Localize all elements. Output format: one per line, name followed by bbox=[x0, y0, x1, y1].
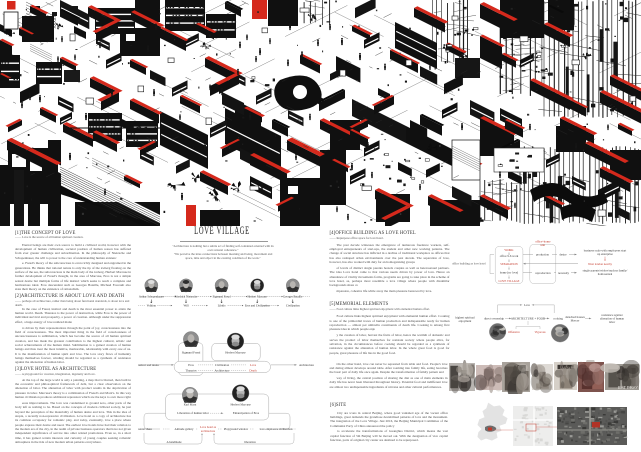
svg-text:architecture: architecture bbox=[201, 429, 216, 433]
svg-text:love emphasize civilization: love emphasize civilization bbox=[260, 427, 293, 431]
svg-text:WORK: WORK bbox=[504, 248, 514, 252]
svg-text:Architecture: Architecture bbox=[299, 363, 315, 367]
svg-text:Attitude gallery: Attitude gallery bbox=[175, 427, 194, 431]
svg-text:rental share: rental share bbox=[138, 427, 153, 431]
svg-text:unit: unit bbox=[540, 243, 545, 247]
svg-text:desire: desire bbox=[559, 253, 567, 257]
svg-text:West london nearby: West london nearby bbox=[588, 262, 612, 266]
svg-text:LOVE VILLAGE: LOVE VILLAGE bbox=[499, 279, 520, 283]
svg-text:Liberation of human labor: Liberation of human labor bbox=[177, 411, 209, 415]
svg-text:cooking: cooking bbox=[553, 316, 563, 320]
svg-text:Herbert Marcuse: Herbert Marcuse bbox=[230, 402, 251, 406]
svg-text:Love: Love bbox=[250, 363, 257, 367]
svg-text:production: production bbox=[536, 253, 549, 257]
svg-text:up enterprise: up enterprise bbox=[597, 252, 613, 256]
svg-text:SEPARATION: SEPARATION bbox=[500, 262, 518, 266]
svg-text:office building as love hotel: office building as love hotel bbox=[452, 262, 486, 266]
svg-text:Mercer: Mercer bbox=[571, 319, 580, 323]
svg-text:A handmade: A handmade bbox=[166, 440, 182, 444]
svg-text:Emancipation of Eros: Emancipation of Eros bbox=[233, 411, 260, 415]
svg-text:Sigmund Freud: Sigmund Freud bbox=[182, 351, 201, 355]
svg-text:Thanatos: Thanatos bbox=[186, 368, 198, 372]
svg-text:Will: Will bbox=[183, 304, 188, 308]
svg-text:EAT PRAY: EAT PRAY bbox=[618, 385, 638, 390]
svg-text:home (no love): home (no love) bbox=[500, 271, 518, 275]
svg-text:Arthur Schopenhauer: Arthur Schopenhauer bbox=[139, 295, 164, 299]
svg-text:Love: Love bbox=[524, 303, 531, 307]
svg-text:liberation: liberation bbox=[244, 440, 256, 444]
svg-text:Eros: Eros bbox=[188, 363, 194, 367]
svg-text:Herbert Marcuse: Herbert Marcuse bbox=[225, 351, 246, 355]
svg-text:Herbert Marcuse: Herbert Marcuse bbox=[247, 295, 267, 299]
svg-text:Georges Bataille: Georges Bataille bbox=[283, 295, 303, 299]
svg-text:homosexual: homosexual bbox=[598, 272, 613, 276]
svg-text:Vigorous: Vigorous bbox=[535, 330, 547, 334]
svg-text:reproduction: reproduction bbox=[535, 271, 551, 275]
svg-text:Death: Death bbox=[249, 368, 257, 372]
svg-text:Civilization: Civilization bbox=[286, 304, 300, 308]
svg-text:Offensive: Offensive bbox=[508, 330, 520, 334]
svg-text:Sigmund Freud: Sigmund Freud bbox=[213, 295, 231, 299]
svg-text:labor: labor bbox=[609, 320, 615, 324]
svg-text:Playground window: Playground window bbox=[224, 427, 249, 431]
svg-text:office 9-6 work: office 9-6 work bbox=[500, 254, 519, 258]
svg-text:Friedrich Nietzsche: Friedrich Nietzsche bbox=[175, 295, 198, 299]
svg-text:TOAST: TOAST bbox=[558, 365, 572, 370]
svg-text:Volition: Volition bbox=[147, 304, 157, 308]
svg-text:direct ownership: direct ownership bbox=[484, 316, 505, 320]
svg-text:Libido: Libido bbox=[218, 304, 226, 308]
svg-text:ARCHITECTURE + FOOD: ARCHITECTURE + FOOD bbox=[511, 316, 546, 320]
svg-text:Karl Marx: Karl Marx bbox=[184, 402, 197, 406]
svg-text:Civilization: Civilization bbox=[215, 363, 230, 367]
svg-text:enjoyment: enjoyment bbox=[459, 319, 472, 323]
svg-text:necessity: necessity bbox=[558, 271, 569, 275]
svg-text:Architecture: Architecture bbox=[215, 368, 231, 372]
